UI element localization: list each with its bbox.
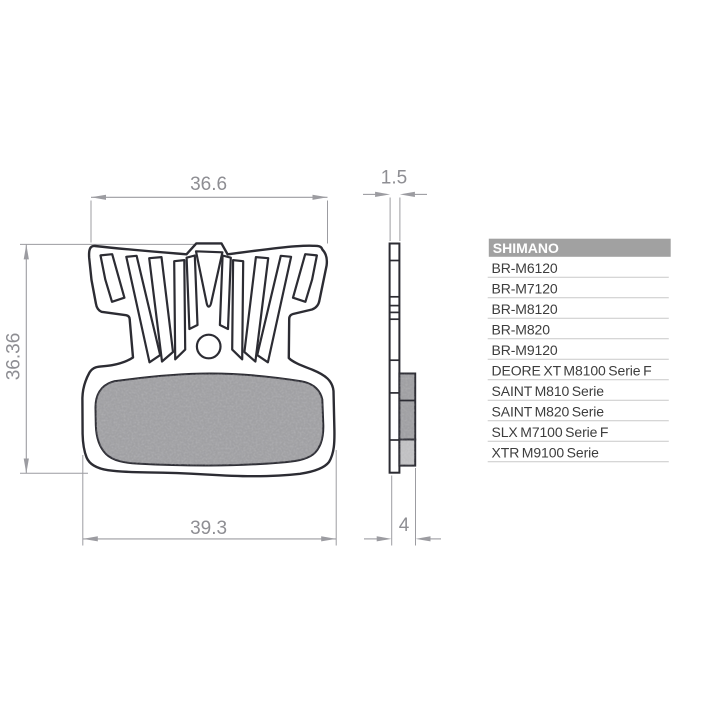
svg-text:39.3: 39.3 [190,518,227,539]
svg-text:SAINT M820 Serie: SAINT M820 Serie [492,404,605,420]
svg-text:BR-M820: BR-M820 [492,322,551,338]
svg-text:DEORE XT M8100 Serie F: DEORE XT M8100 Serie F [492,363,652,379]
svg-text:BR-M9120: BR-M9120 [492,342,558,358]
svg-text:SLX M7100 Serie F: SLX M7100 Serie F [492,424,609,440]
svg-text:36.6: 36.6 [190,174,227,195]
svg-text:36.36: 36.36 [4,333,25,381]
svg-text:SAINT M810 Serie: SAINT M810 Serie [492,383,605,399]
svg-text:BR-M8120: BR-M8120 [492,301,558,317]
svg-text:XTR M9100 Serie: XTR M9100 Serie [492,445,600,461]
svg-text:4: 4 [399,515,410,536]
svg-text:SHIMANO: SHIMANO [493,240,559,256]
svg-text:BR-M6120: BR-M6120 [492,260,558,276]
svg-text:1.5: 1.5 [381,168,407,189]
svg-text:BR-M7120: BR-M7120 [492,281,558,297]
